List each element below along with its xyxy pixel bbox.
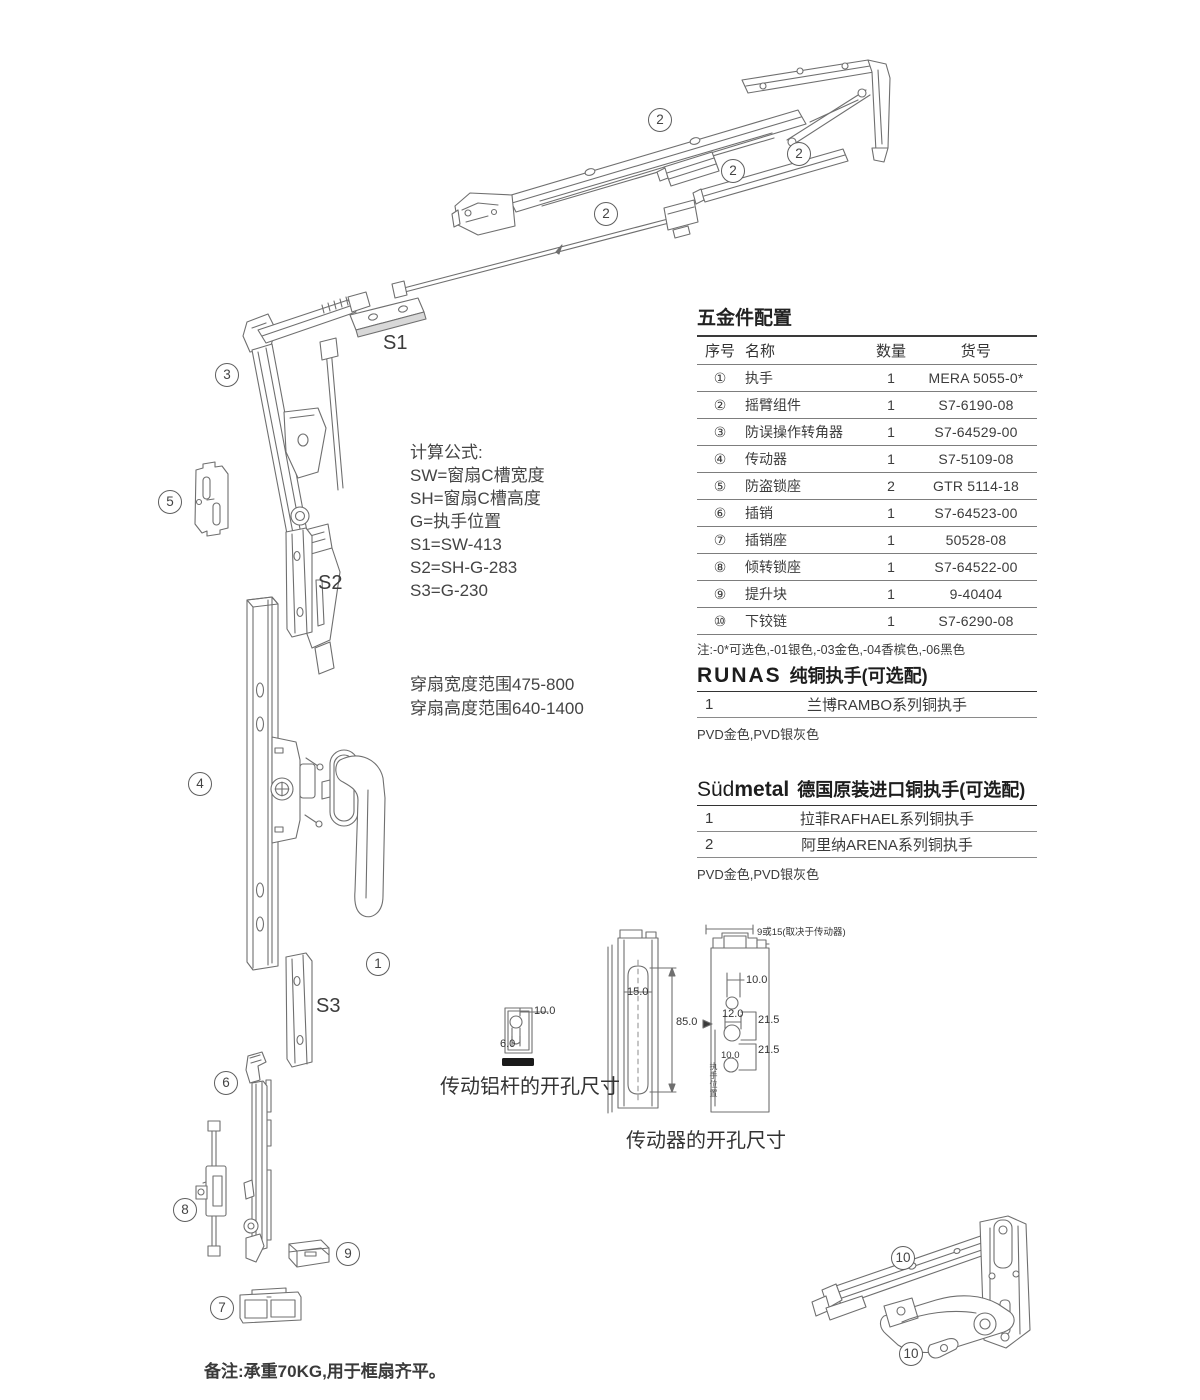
label-s3: S3 [316, 995, 340, 1018]
runas-row: 1 兰博RAMBO系列铜执手 [697, 692, 1037, 718]
part-9-lift-block-drawing [289, 1240, 329, 1267]
row-code: 9-40404 [915, 586, 1037, 602]
row-name: 提升块 [743, 584, 867, 604]
row-qty: 2 [867, 478, 915, 494]
row-qty: 1 [867, 397, 915, 413]
runas-row-no: 1 [697, 696, 737, 713]
runas-title: 纯铜执手(可选配) [790, 662, 928, 688]
hardware-config-table: 五金件配置 序号 名称 数量 货号 ① 执手 1 MERA 5055-0* ② … [697, 303, 1037, 658]
table-row: ② 摇臂组件 1 S7-6190-08 [697, 392, 1037, 419]
row-name: 防盗锁座 [743, 476, 867, 496]
sudmetal-row-no: 1 [697, 810, 737, 827]
runas-optional-section: RUNAS 纯铜执手(可选配) 1 兰博RAMBO系列铜执手 PVD金色,PVD… [697, 662, 1037, 743]
row-code: S7-64523-00 [915, 505, 1037, 521]
callout-part-2: 2 [594, 202, 618, 226]
row-qty: 1 [867, 559, 915, 575]
runas-finish-note: PVD金色,PVD银灰色 [697, 724, 1037, 743]
dim-profile-offset-note: 9或15(取决于传动器) [757, 924, 846, 938]
dim-gearbox-slot-height: 85.0 [676, 1016, 697, 1028]
row-code: S7-6290-08 [915, 613, 1037, 629]
col-header-name: 名称 [743, 340, 867, 361]
sudmetal-optional-section: Südmetal 德国原装进口铜执手(可选配) 1 拉菲RAFHAEL系列铜执手… [697, 776, 1037, 883]
row-code: GTR 5114-18 [915, 478, 1037, 494]
dim-profile-step2: 21.5 [758, 1044, 779, 1056]
row-code: S7-6190-08 [915, 397, 1037, 413]
col-header-qty: 数量 [867, 340, 915, 361]
callout-part-9: 9 [336, 1242, 360, 1266]
table-row: ⑧ 倾转锁座 1 S7-64522-00 [697, 554, 1037, 581]
part-1-handle-drawing [322, 750, 385, 917]
sudmetal-logo: Südmetal [697, 778, 789, 802]
dim-profile-low: 10.0 [721, 1050, 740, 1061]
callout-part-4: 4 [188, 772, 212, 796]
row-code: S7-64522-00 [915, 559, 1037, 575]
row-index: ⑦ [697, 532, 743, 549]
label-handle-position: 执手位置 [708, 1062, 719, 1098]
formula-heading: 计算公式: [410, 441, 545, 464]
sudmetal-row-no: 2 [697, 836, 737, 853]
range-line: 穿扇高度范围640-1400 [410, 697, 584, 721]
plate-s2-drawing [286, 528, 312, 637]
sudmetal-row: 2 阿里纳ARENA系列铜执手 [697, 832, 1037, 858]
table-row: ① 执手 1 MERA 5055-0* [697, 365, 1037, 392]
part-10-bottom-hinge-drawing [812, 1216, 1030, 1358]
dim-profile-mid: 12.0 [722, 1008, 743, 1020]
row-index: ⑧ [697, 559, 743, 576]
row-name: 插销座 [743, 530, 867, 550]
callout-part-2: 2 [787, 142, 811, 166]
formula-line: G=执手位置 [410, 510, 545, 533]
row-qty: 1 [867, 424, 915, 440]
table-row: ⑩ 下铰链 1 S7-6290-08 [697, 608, 1037, 635]
dim-profile-top: 10.0 [746, 974, 767, 986]
callout-part-10: 10 [891, 1246, 915, 1270]
callout-part-3: 3 [215, 363, 239, 387]
calculation-formulas: 计算公式: SW=窗扇C槽宽度 SH=窗扇C槽高度 G=执手位置 S1=SW-4… [410, 441, 545, 602]
formula-line: SH=窗扇C槽高度 [410, 487, 545, 510]
col-header-index: 序号 [697, 340, 743, 361]
row-name: 插销 [743, 503, 867, 523]
callout-part-10: 10 [899, 1342, 923, 1366]
callout-part-6: 6 [214, 1071, 238, 1095]
row-qty: 1 [867, 613, 915, 629]
row-qty: 1 [867, 451, 915, 467]
col-header-code: 货号 [915, 340, 1037, 361]
row-index: ⑤ [697, 478, 743, 495]
row-index: ④ [697, 451, 743, 468]
table-row: ⑨ 提升块 1 9-40404 [697, 581, 1037, 608]
part-2-scissor-stay-drawing [392, 60, 890, 298]
catalog-page: 2 2 2 2 3 5 4 1 6 8 9 7 10 10 S1 S2 S3 五… [0, 0, 1200, 1400]
row-name: 执手 [743, 368, 867, 388]
callout-part-5: 5 [158, 490, 182, 514]
row-index: ② [697, 397, 743, 414]
runas-row-name: 兰博RAMBO系列铜执手 [737, 694, 1037, 715]
table-header-row: 序号 名称 数量 货号 [697, 337, 1037, 365]
row-name: 下铰链 [743, 611, 867, 631]
row-qty: 1 [867, 532, 915, 548]
range-line: 穿扇宽度范围475-800 [410, 673, 584, 697]
row-index: ⑩ [697, 613, 743, 630]
table-row: ④ 传动器 1 S7-5109-08 [697, 446, 1037, 473]
plate-s3-drawing [286, 953, 312, 1067]
dim-profile-step1: 21.5 [758, 1014, 779, 1026]
sudmetal-title: 德国原装进口铜执手(可选配) [797, 776, 1025, 802]
table-row: ⑥ 插销 1 S7-64523-00 [697, 500, 1037, 527]
dim-rod-slot: 6.0 [500, 1038, 515, 1050]
sudmetal-row-name: 阿里纳ARENA系列铜执手 [737, 834, 1037, 855]
table-row: ③ 防误操作转角器 1 S7-64529-00 [697, 419, 1037, 446]
row-index: ③ [697, 424, 743, 441]
row-qty: 1 [867, 370, 915, 386]
callout-part-2: 2 [721, 159, 745, 183]
row-name: 防误操作转角器 [743, 422, 867, 442]
row-code: S7-64529-00 [915, 424, 1037, 440]
dim-gearbox-slot-width: 15.0 [627, 986, 648, 998]
formula-line: S1=SW-413 [410, 533, 545, 556]
row-qty: 1 [867, 586, 915, 602]
sash-size-ranges: 穿扇宽度范围475-800 穿扇高度范围640-1400 [410, 673, 584, 721]
runas-logo: RUNAS [697, 664, 782, 688]
label-s2: S2 [318, 572, 342, 595]
sudmetal-row-name: 拉菲RAFHAEL系列铜执手 [737, 808, 1037, 829]
part-7-bolt-keeper-drawing [240, 1288, 301, 1323]
dim-rod-width: 10.0 [534, 1005, 555, 1017]
row-name: 倾转锁座 [743, 557, 867, 577]
part-5-keeper-drawing [195, 462, 228, 536]
table-title: 五金件配置 [697, 303, 1037, 337]
row-index: ① [697, 370, 743, 387]
sudmetal-finish-note: PVD金色,PVD银灰色 [697, 864, 1037, 883]
row-index: ⑨ [697, 586, 743, 603]
callout-part-1: 1 [366, 952, 390, 976]
label-s1: S1 [383, 332, 407, 355]
row-name: 摇臂组件 [743, 395, 867, 415]
formula-line: SW=窗扇C槽宽度 [410, 464, 545, 487]
formula-line: S3=G-230 [410, 579, 545, 602]
formula-line: S2=SH-G-283 [410, 556, 545, 579]
row-name: 传动器 [743, 449, 867, 469]
part-8-tilt-lock-drawing [196, 1121, 226, 1256]
sudmetal-row: 1 拉菲RAFHAEL系列铜执手 [697, 806, 1037, 832]
callout-part-7: 7 [210, 1296, 234, 1320]
callout-part-2: 2 [648, 108, 672, 132]
row-code: 50528-08 [915, 532, 1037, 548]
caption-gearbox-drilling: 传动器的开孔尺寸 [626, 1124, 786, 1153]
part-4-espagnolette-drawing [247, 597, 323, 970]
footer-note: 备注:承重70KG,用于框扇齐平。 [204, 1357, 446, 1382]
callout-part-8: 8 [173, 1198, 197, 1222]
row-code: MERA 5055-0* [915, 370, 1037, 386]
row-qty: 1 [867, 505, 915, 521]
table-color-note: 注:-0*可选色,-01银色,-03金色,-04香槟色,-06黑色 [697, 639, 1037, 658]
row-index: ⑥ [697, 505, 743, 522]
row-code: S7-5109-08 [915, 451, 1037, 467]
table-row: ⑦ 插销座 1 50528-08 [697, 527, 1037, 554]
part-6-shoot-bolt-drawing [244, 1052, 271, 1262]
table-row: ⑤ 防盗锁座 2 GTR 5114-18 [697, 473, 1037, 500]
caption-rod-drilling: 传动铝杆的开孔尺寸 [440, 1070, 620, 1099]
